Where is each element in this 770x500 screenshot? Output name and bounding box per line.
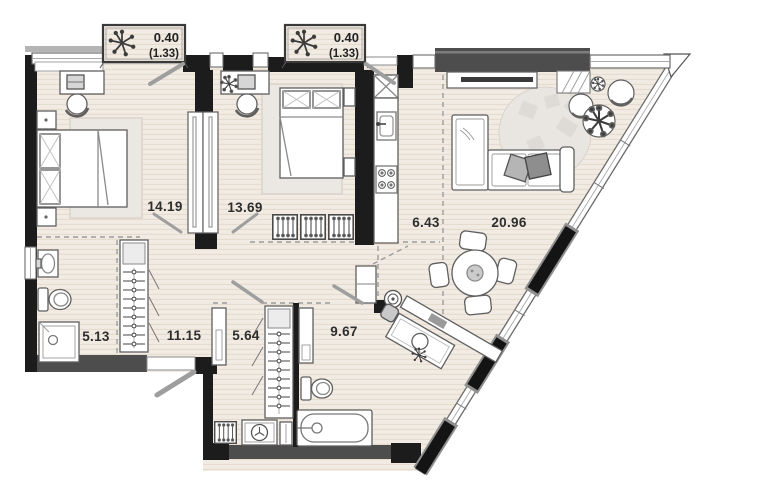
wall-top-1 [183, 55, 210, 72]
wall-bedrooms-top [195, 70, 213, 112]
table-centerpiece [467, 265, 483, 281]
tall-cabinet [212, 308, 226, 365]
balcony-1-coefficient: (1.33) [149, 48, 179, 60]
bath-tall-unit [299, 308, 313, 363]
window-kitchen [413, 55, 435, 68]
tv [461, 77, 533, 82]
hangers [268, 332, 290, 408]
dresser [301, 215, 325, 239]
wall-bottom [203, 445, 415, 459]
faucet [36, 259, 41, 268]
dressing-wardrobe-shelf [268, 309, 290, 328]
label-living-room: 20.96 [491, 215, 526, 230]
entry-door-swing [157, 372, 194, 395]
window-sill-bedroom1 [35, 62, 103, 71]
wall-bedroom2-kitchen [355, 70, 374, 245]
desk-chair [237, 94, 257, 114]
shower [39, 322, 79, 362]
wardrobe-bedroom2 [203, 112, 218, 233]
label-bedroom-2: 13.69 [227, 200, 262, 215]
hall-wardrobe-shelf [123, 243, 145, 264]
bathtub [297, 410, 372, 446]
wall-bedrooms-bottom [195, 233, 217, 249]
toilet [301, 377, 333, 400]
corner-sill [557, 71, 590, 93]
washing-machine [242, 420, 277, 445]
pillow [525, 153, 551, 179]
dining-chair [464, 295, 492, 316]
facade-strip [25, 46, 103, 52]
wall-bottom-corner-right [391, 443, 421, 463]
wall-bottom-corner-left [203, 443, 229, 460]
laptop [238, 75, 255, 89]
desk-chair [67, 94, 87, 114]
label-hallway: 11.15 [167, 328, 202, 343]
label-kitchen: 6.43 [412, 215, 440, 230]
label-bedroom-1: 14.19 [147, 199, 182, 214]
wall-top-4 [397, 55, 413, 88]
label-bathroom-2: 9.67 [330, 324, 357, 339]
wall-bottom-left-corner [25, 355, 37, 372]
floor-plan-page: 0.40 (1.33) 0.40 (1.33) [0, 0, 770, 500]
label-dressing: 5.64 [232, 328, 260, 343]
dresser [329, 215, 353, 239]
hangers [123, 270, 145, 346]
balcony-1: 0.40 (1.33) [100, 25, 188, 68]
wall-dressing-left [203, 368, 213, 450]
balcony-2-area: 0.40 [334, 30, 359, 45]
entry-door-opening [147, 357, 195, 370]
dresser [273, 215, 297, 239]
balcony-2: 0.40 (1.33) [282, 25, 368, 68]
window-narrow-1 [210, 53, 223, 67]
wall-left [25, 55, 37, 372]
dining-chair [459, 230, 487, 251]
towel-radiator [215, 422, 237, 444]
sofa-armrest [560, 147, 574, 192]
floor-plan: 0.40 (1.33) 0.40 (1.33) [0, 0, 770, 500]
balcony-1-area: 0.40 [154, 30, 179, 45]
built-in-wardrobes [188, 112, 218, 233]
nightstand [344, 88, 355, 106]
wall-top-2 [223, 55, 253, 72]
window-narrow-2 [253, 53, 268, 67]
nightstand [344, 158, 355, 176]
balcony-2-coefficient: (1.33) [329, 48, 359, 60]
label-bathroom-1: 5.13 [82, 329, 110, 344]
dining-chair [428, 262, 449, 288]
wall-top-gray-highlight [435, 51, 590, 54]
toilet [38, 288, 71, 311]
